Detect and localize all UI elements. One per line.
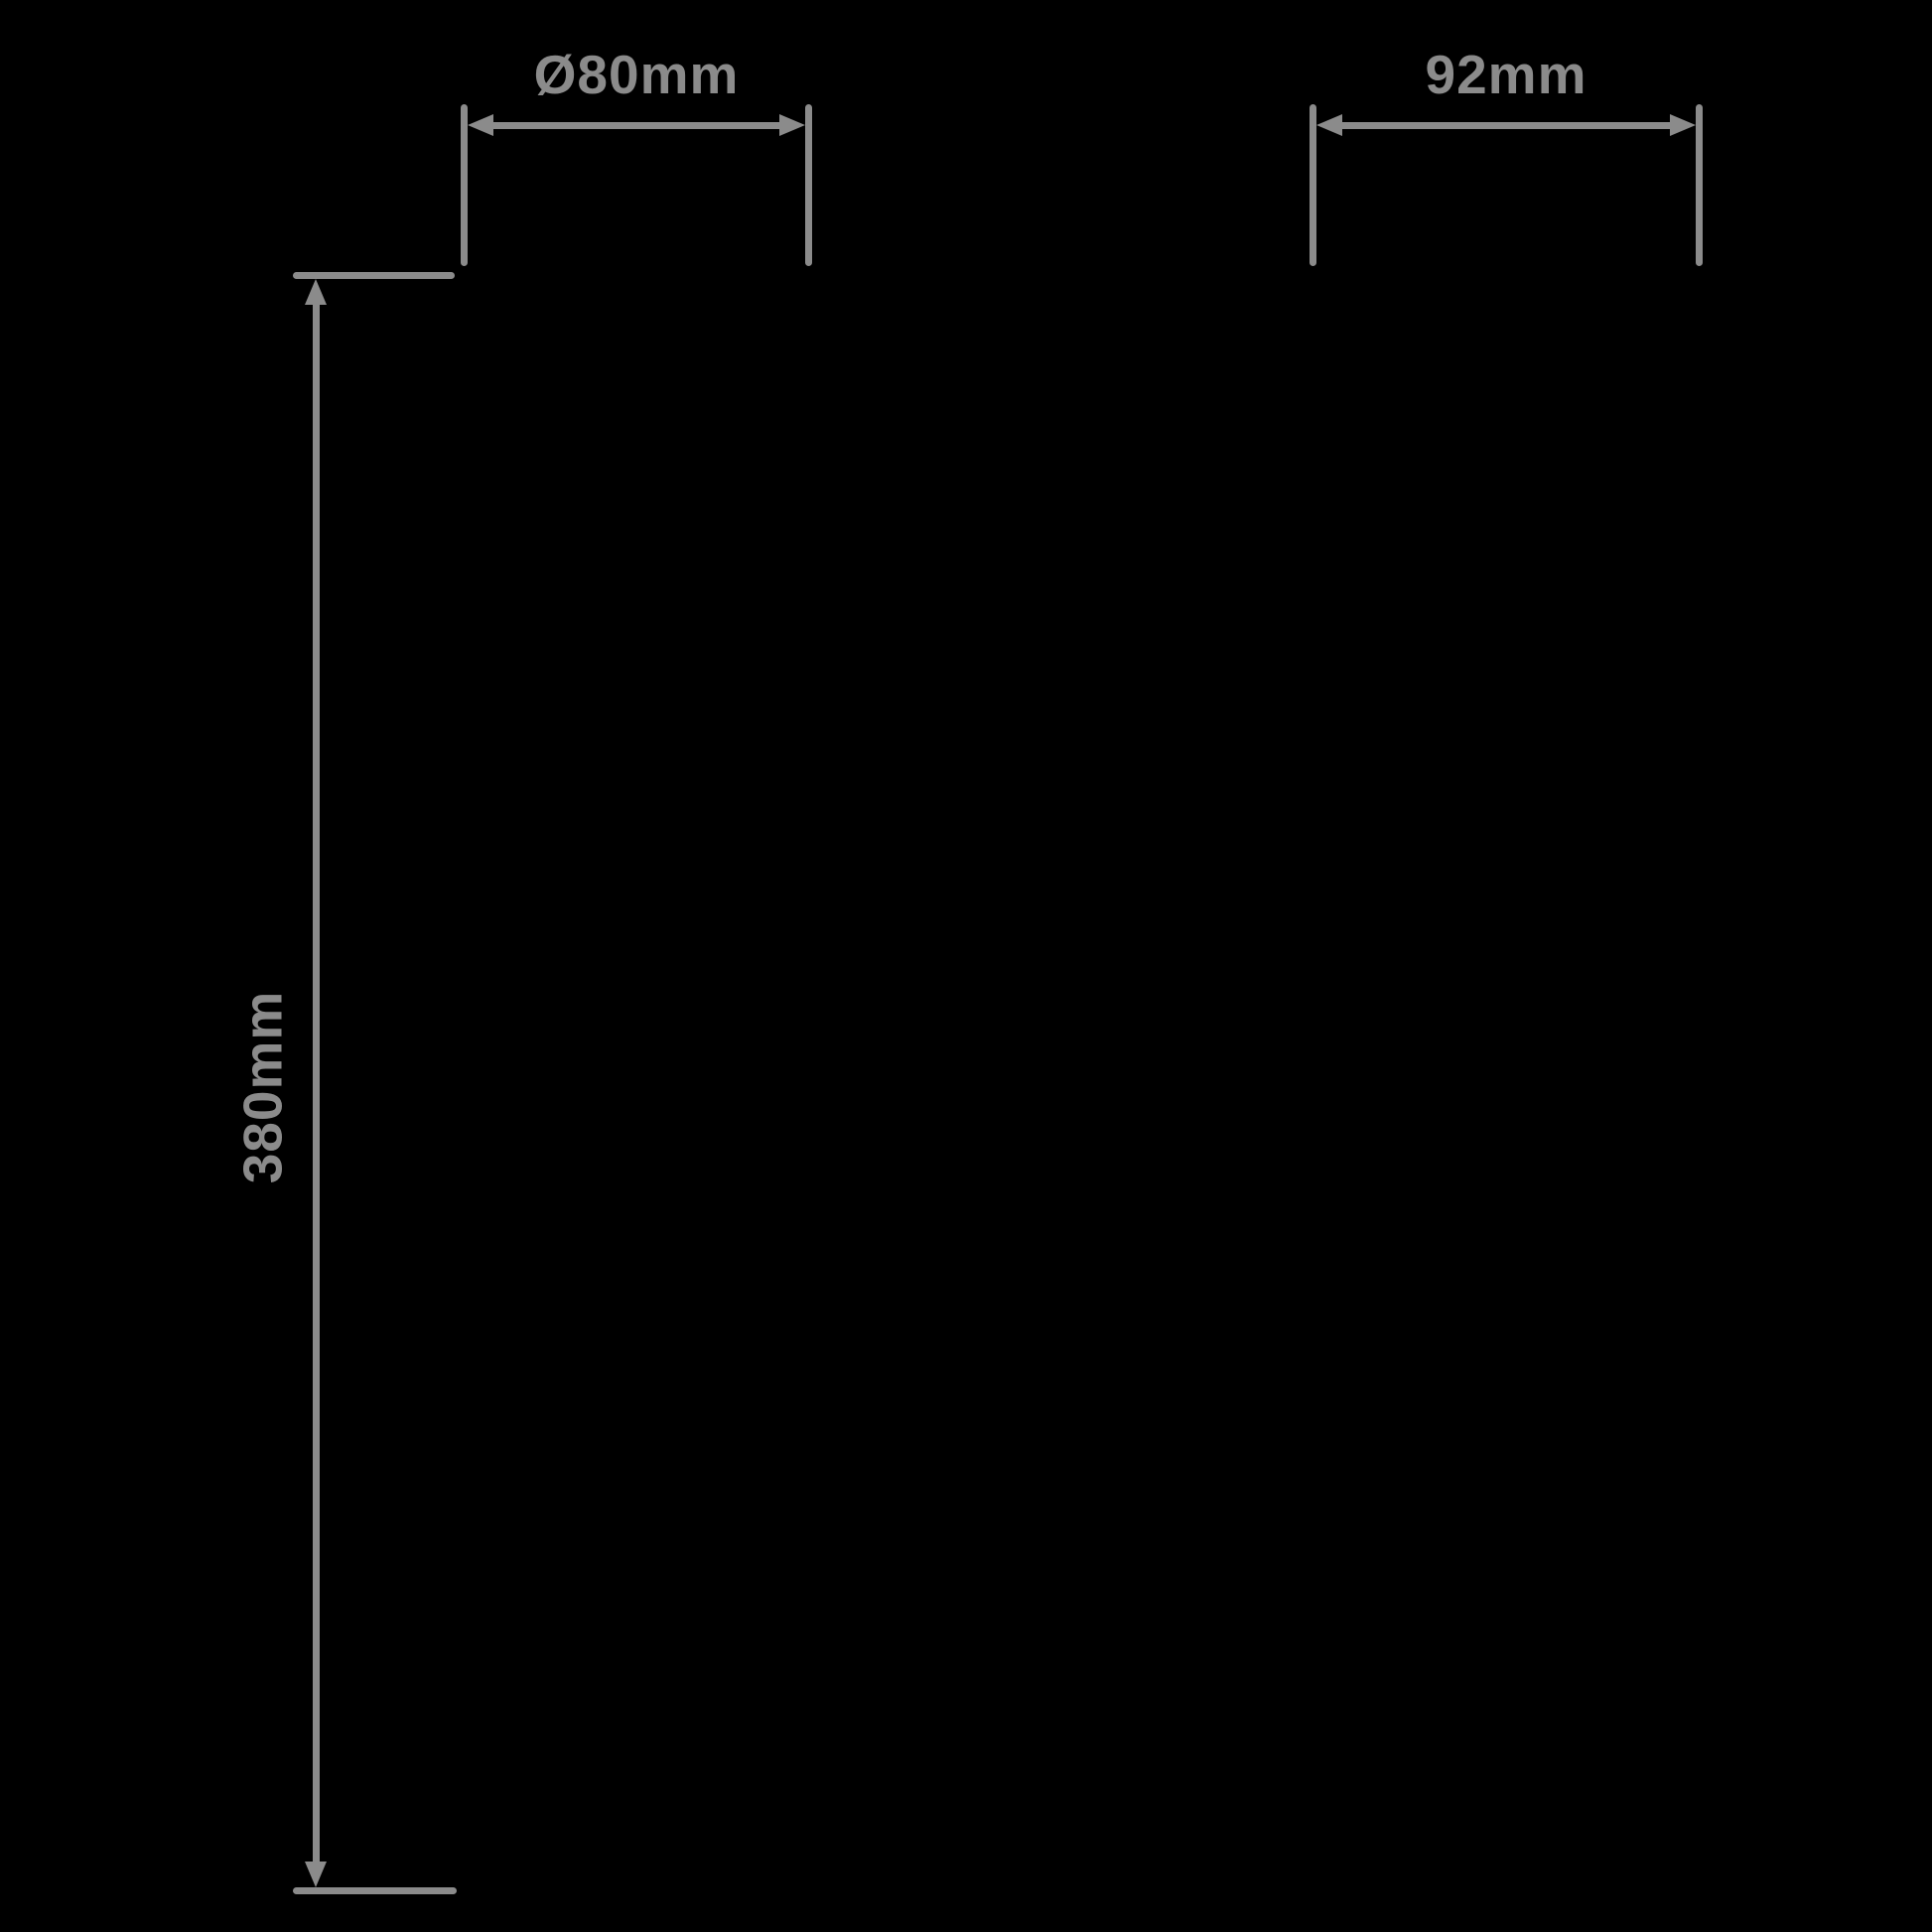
diameter-extension-line-left	[461, 104, 468, 266]
height-arrow-down	[305, 1862, 327, 1887]
height-reference-line-top	[293, 272, 455, 279]
diameter-dimension-line	[488, 122, 785, 129]
height-dimension-line	[313, 298, 320, 1866]
height-reference-line-bottom	[293, 1887, 457, 1894]
height-dimension-label: 380mm	[236, 991, 291, 1184]
diameter-extension-line-right	[805, 104, 812, 266]
height-arrow-up	[305, 279, 327, 305]
width-extension-line-right	[1696, 104, 1703, 266]
width-arrow-left	[1316, 114, 1342, 136]
diameter-dimension-label: Ø80mm	[534, 48, 740, 102]
diameter-arrow-right	[779, 114, 805, 136]
dimension-diagram: Ø80mm 92mm 380mm	[0, 0, 1932, 1932]
diameter-arrow-left	[468, 114, 493, 136]
width-dimension-label: 92mm	[1426, 48, 1587, 102]
width-arrow-right	[1670, 114, 1696, 136]
width-extension-line-left	[1310, 104, 1316, 266]
width-dimension-line	[1338, 122, 1674, 129]
